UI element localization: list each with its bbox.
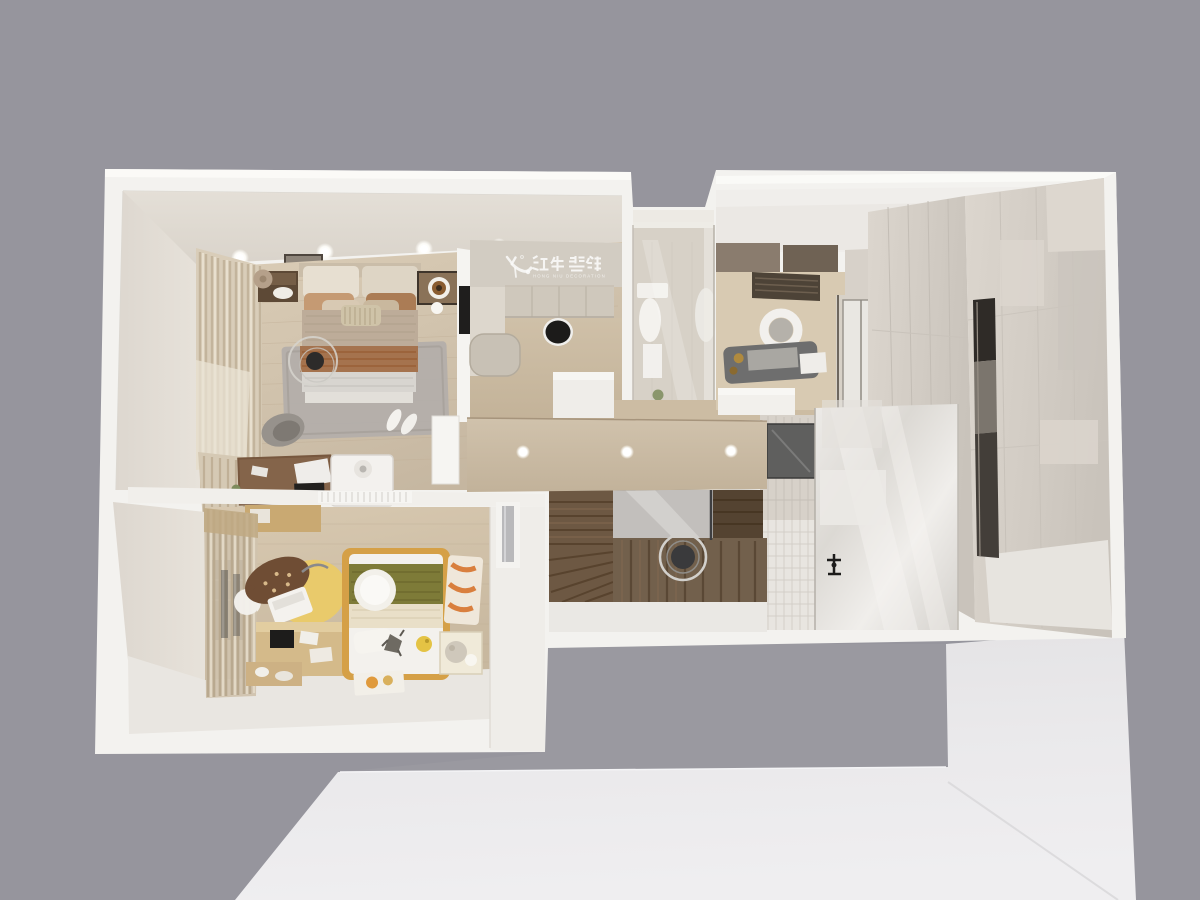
svg-text:HONG NIU DECORATION: HONG NIU DECORATION (533, 274, 606, 279)
